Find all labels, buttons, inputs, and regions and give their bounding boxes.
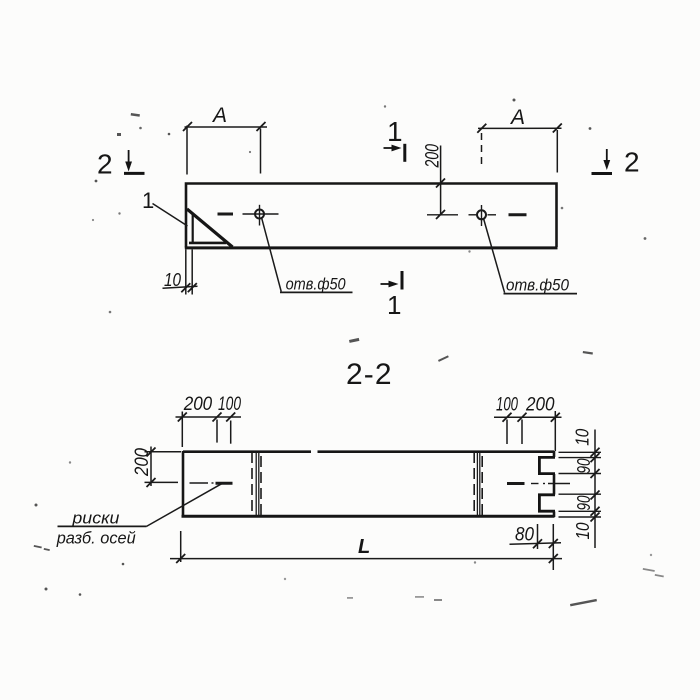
svg-text:1: 1: [387, 290, 401, 320]
svg-text:10: 10: [573, 429, 593, 446]
svg-text:2: 2: [624, 147, 640, 178]
svg-text:100: 100: [496, 395, 518, 416]
svg-text:1: 1: [142, 188, 154, 213]
svg-text:80: 80: [515, 525, 534, 546]
svg-text:10: 10: [573, 523, 593, 540]
svg-text:1: 1: [387, 116, 403, 147]
svg-text:2-2: 2-2: [346, 358, 392, 391]
svg-text:200: 200: [183, 394, 213, 415]
svg-text:90: 90: [574, 459, 594, 474]
svg-text:2: 2: [97, 149, 113, 180]
svg-text:200: 200: [132, 448, 153, 477]
svg-text:разб. осей: разб. осей: [56, 529, 136, 548]
svg-text:риски: риски: [71, 509, 120, 528]
svg-text:А: А: [509, 106, 525, 129]
svg-text:отв.ф50: отв.ф50: [506, 276, 569, 295]
svg-text:90: 90: [574, 496, 594, 511]
svg-text:отв.ф50: отв.ф50: [286, 275, 346, 294]
svg-text:200: 200: [525, 395, 555, 416]
svg-text:10: 10: [164, 270, 181, 290]
svg-text:200: 200: [423, 144, 444, 169]
svg-text:А: А: [211, 104, 227, 127]
svg-text:L: L: [358, 536, 370, 558]
svg-text:100: 100: [218, 394, 241, 415]
